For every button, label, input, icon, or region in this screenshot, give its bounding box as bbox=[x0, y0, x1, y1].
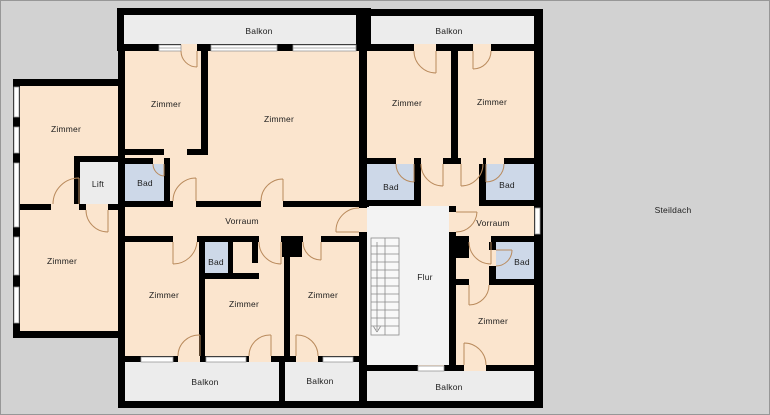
floor-plan-canvas: BalkonBalkonZimmerZimmerZimmerZimmerZimm… bbox=[0, 0, 770, 415]
floor-plan-drawing bbox=[1, 1, 770, 415]
staircase bbox=[371, 238, 399, 335]
